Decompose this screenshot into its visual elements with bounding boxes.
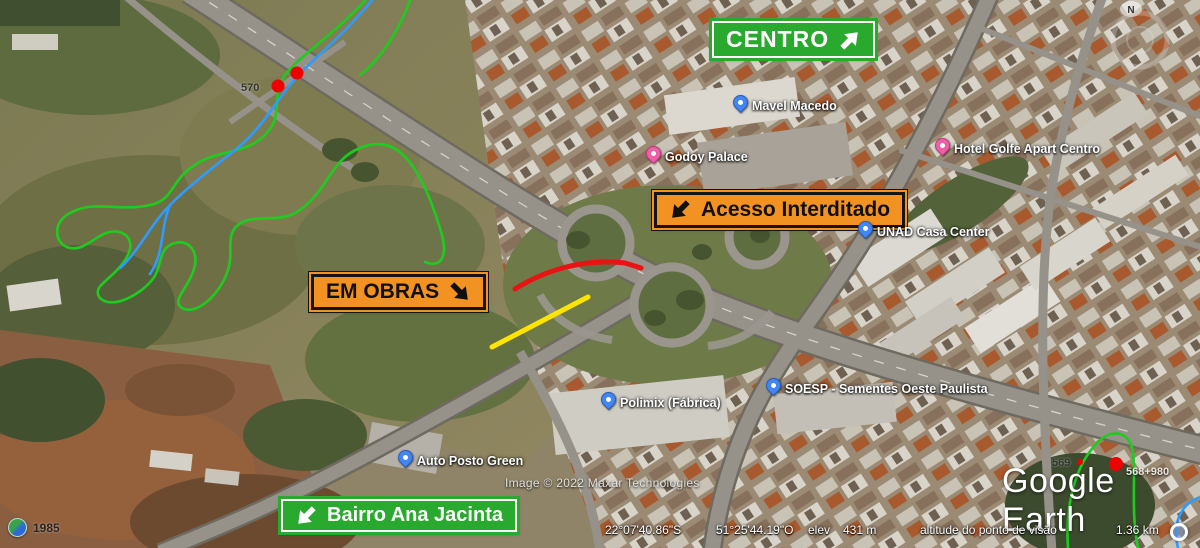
historical-imagery-year: 1985 xyxy=(33,521,60,535)
place-godoy-palace: Godoy Palace xyxy=(646,146,748,164)
arrow-se-icon xyxy=(445,276,476,307)
historical-imagery[interactable]: 1985 xyxy=(8,518,60,537)
arrow-sw-icon xyxy=(664,194,695,225)
map-pin-icon[interactable] xyxy=(855,218,876,239)
status-circle-icon[interactable] xyxy=(1170,523,1188,541)
place-polimix-fabrica: Polimix (Fábrica) xyxy=(601,392,721,410)
historical-imagery-icon[interactable] xyxy=(8,518,27,537)
sign-em-obras: EM OBRAS xyxy=(311,274,486,310)
sign-em-obras-label: EM OBRAS xyxy=(326,280,439,304)
sign-centro-label: CENTRO xyxy=(726,26,829,53)
place-mavel-macedo: Mavel Macedo xyxy=(733,95,837,113)
eye-altitude-label: altitude do ponto de visão xyxy=(920,523,1057,537)
place-unad-casa-center: UNAD Casa Center xyxy=(858,221,990,239)
arrow-ne-icon xyxy=(835,24,866,55)
place-auto-posto-green: Auto Posto Green xyxy=(398,450,523,468)
place-label: Mavel Macedo xyxy=(752,99,837,113)
map-pin-icon[interactable] xyxy=(395,447,416,468)
map-pin-icon[interactable] xyxy=(763,375,784,396)
latitude-value: 22°07'40.86"S xyxy=(605,523,681,537)
place-label: Godoy Palace xyxy=(665,150,748,164)
elevation-value: 431 m xyxy=(843,523,876,537)
map-pin-icon[interactable] xyxy=(730,92,751,113)
compass-north-label: N xyxy=(1127,5,1134,16)
place-label: Hotel Golfe Apart Centro xyxy=(954,142,1100,156)
sign-bairro-ana-jacinta-label: Bairro Ana Jacinta xyxy=(327,504,503,527)
place-label: SOESP - Sementes Oeste Paulista xyxy=(785,382,988,396)
place-soesp: SOESP - Sementes Oeste Paulista xyxy=(766,378,988,396)
google-earth-viewport[interactable]: N CENTRO Acesso Interditado EM OBRAS Bai… xyxy=(0,0,1200,548)
arrow-sw-icon xyxy=(290,500,321,531)
place-label: Polimix (Fábrica) xyxy=(620,396,721,410)
imagery-attribution: Image © 2022 Maxar Technologies xyxy=(505,476,700,490)
km-marker-570: 570 xyxy=(241,82,259,94)
place-hotel: Hotel Golfe Apart Centro xyxy=(935,138,1100,156)
sign-bairro-ana-jacinta: Bairro Ana Jacinta xyxy=(281,499,517,532)
compass[interactable]: N xyxy=(1106,0,1176,78)
eye-altitude-value: 1.36 km xyxy=(1116,523,1159,537)
map-pin-icon[interactable] xyxy=(598,389,619,410)
hotel-pin-icon[interactable] xyxy=(643,143,664,164)
sign-acesso-interditado-label: Acesso Interditado xyxy=(701,198,890,222)
place-label: Auto Posto Green xyxy=(417,454,523,468)
elevation-label: elev xyxy=(808,523,830,537)
sign-centro: CENTRO xyxy=(712,21,875,58)
longitude-value: 51°25'44.19"O xyxy=(716,523,793,537)
place-label: UNAD Casa Center xyxy=(877,225,990,239)
hotel-pin-icon[interactable] xyxy=(932,135,953,156)
